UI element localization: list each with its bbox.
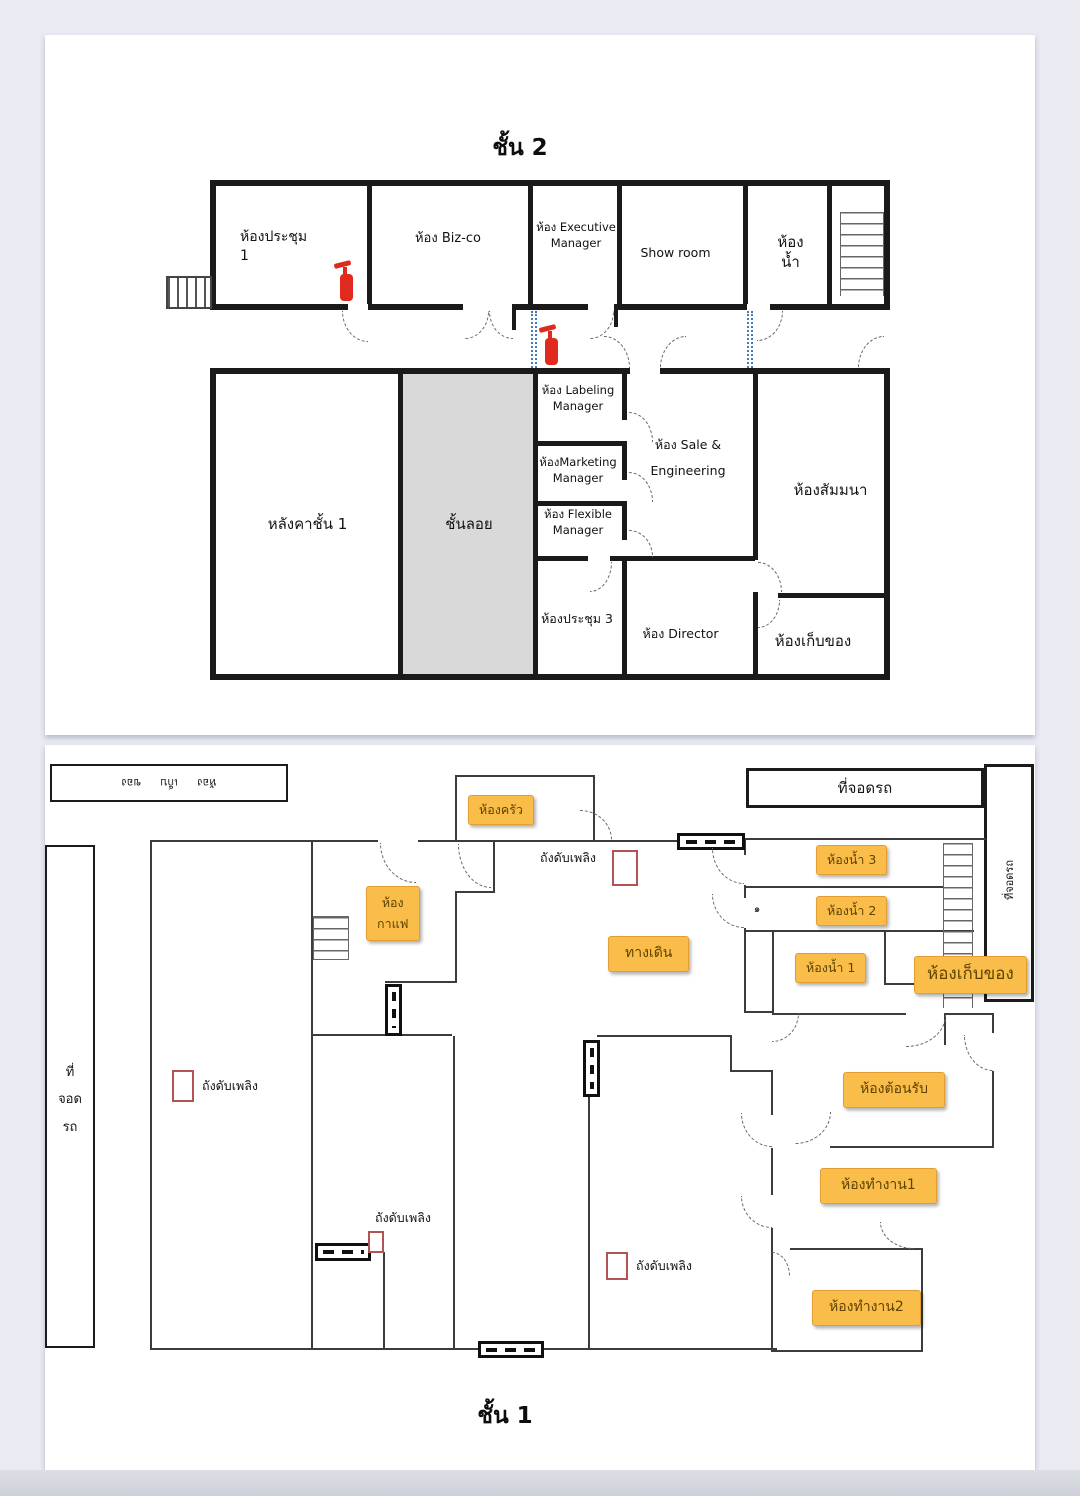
room-label-line: 1 bbox=[240, 247, 340, 266]
wall bbox=[150, 840, 378, 842]
wall bbox=[743, 186, 748, 304]
wall bbox=[744, 886, 944, 888]
wall bbox=[622, 374, 627, 420]
wall bbox=[512, 304, 588, 310]
room-label-line: Manager bbox=[533, 236, 619, 252]
wall bbox=[610, 556, 627, 561]
wall bbox=[210, 368, 216, 680]
room-label-marketing: ห้องMarketing Manager bbox=[538, 455, 618, 486]
room-label-line: ห้องประชุม bbox=[240, 228, 340, 247]
badge-toilet3: ห้องน้ำ 3 bbox=[816, 845, 887, 875]
badge-office1: ห้องทำงาน1 bbox=[820, 1168, 937, 1204]
parking-left-line: ที่ bbox=[47, 1059, 93, 1086]
parking-left-label: ที่ จอด รถ bbox=[47, 1059, 93, 1141]
room-label-line: Manager bbox=[538, 399, 618, 415]
wall bbox=[597, 1035, 732, 1037]
room-label-flexible: ห้อง Flexible Manager bbox=[538, 507, 618, 538]
room-label-line: น้ำ bbox=[768, 252, 813, 272]
wall bbox=[944, 1013, 994, 1015]
room-label-mezzanine: ชั้นลอย bbox=[433, 514, 505, 534]
sliding-door-icon bbox=[478, 1341, 544, 1358]
badge-line: กาแฟ bbox=[377, 913, 409, 934]
wall bbox=[210, 304, 348, 310]
wall bbox=[538, 556, 588, 561]
connector-dotted-icon bbox=[531, 311, 537, 368]
wall bbox=[455, 775, 595, 777]
wall bbox=[884, 932, 886, 985]
connector-dotted-icon bbox=[747, 311, 753, 368]
wall bbox=[538, 441, 627, 446]
wall bbox=[770, 304, 890, 310]
wall bbox=[730, 1070, 773, 1072]
room-label-line: ห้อง Labeling bbox=[538, 383, 618, 399]
room-label-labeling: ห้อง Labeling Manager bbox=[538, 383, 618, 414]
wall bbox=[744, 838, 986, 840]
wall bbox=[884, 368, 890, 680]
room-label-line: ห้อง Executive bbox=[533, 220, 619, 236]
wall bbox=[210, 180, 890, 186]
wall bbox=[383, 1252, 385, 1350]
wall bbox=[771, 1072, 773, 1115]
wall bbox=[418, 840, 678, 842]
wall bbox=[622, 561, 627, 674]
wall bbox=[622, 506, 627, 540]
badge-coffee: ห้อง กาแฟ bbox=[366, 886, 420, 941]
room-label-line: ห้อง Sale & bbox=[638, 432, 738, 458]
wall bbox=[660, 368, 890, 374]
door-post bbox=[614, 310, 618, 327]
fire-extinguisher-outline-icon bbox=[172, 1070, 194, 1102]
wall bbox=[367, 186, 372, 304]
wall bbox=[778, 593, 890, 598]
fire-extinguisher-icon bbox=[545, 338, 558, 365]
storage-box-rotated: ห้อง เก็บ ของ bbox=[50, 764, 288, 802]
stairs-icon bbox=[166, 276, 212, 309]
wall bbox=[455, 891, 457, 983]
fire-extinguisher-label: ถังดับเพลิง bbox=[636, 1258, 746, 1275]
wall bbox=[210, 674, 890, 680]
wall bbox=[398, 368, 403, 680]
wall bbox=[744, 930, 974, 932]
wall bbox=[790, 1248, 923, 1250]
wall bbox=[744, 1011, 774, 1013]
badge-line: ห้อง bbox=[377, 892, 409, 913]
wall bbox=[744, 928, 746, 1013]
room-label-line: Manager bbox=[538, 471, 618, 487]
fire-extinguisher-label: ถังดับเพลิง bbox=[375, 1210, 485, 1227]
badge-walkway: ทางเดิน bbox=[608, 936, 689, 972]
wall bbox=[992, 1071, 994, 1148]
fire-extinguisher-icon bbox=[340, 274, 353, 301]
wall bbox=[455, 891, 495, 893]
room-label-line: ห้องMarketing bbox=[538, 455, 618, 471]
badge-toilet2: ห้องน้ำ 2 bbox=[816, 896, 887, 926]
floor1-title: ชั้น 1 bbox=[445, 1398, 565, 1434]
room-label-meeting3: ห้องประชุม 3 bbox=[536, 611, 618, 628]
wall bbox=[753, 368, 758, 560]
wall bbox=[538, 501, 627, 506]
badge-storage-f1: ห้องเก็บของ bbox=[914, 956, 1027, 994]
parking-left-line: รถ bbox=[47, 1114, 93, 1141]
room-label-executive: ห้อง Executive Manager bbox=[533, 220, 619, 251]
wall bbox=[730, 1035, 732, 1072]
room-label-bizco: ห้อง Biz-co bbox=[393, 230, 503, 248]
wall bbox=[385, 981, 457, 983]
wall bbox=[884, 180, 890, 310]
stairs-icon bbox=[840, 212, 884, 296]
stairs-icon bbox=[313, 916, 349, 960]
room-label-line: Manager bbox=[538, 523, 618, 539]
fire-extinguisher-outline-icon bbox=[368, 1231, 384, 1253]
parking-right-label: ที่จอดรถ bbox=[999, 845, 1019, 915]
wall bbox=[992, 1015, 994, 1033]
room-label-line: ห้อง bbox=[768, 232, 813, 252]
page-footer-shade bbox=[0, 1470, 1080, 1496]
sliding-door-icon bbox=[583, 1040, 600, 1097]
floor-plan-page: ชั้น 2 bbox=[0, 0, 1080, 1496]
storage-box-label: ห้อง เก็บ ของ bbox=[52, 766, 286, 800]
wall bbox=[150, 840, 152, 1350]
wall bbox=[150, 1348, 777, 1350]
wall bbox=[622, 446, 627, 480]
wall bbox=[771, 1148, 773, 1195]
sliding-door-icon bbox=[385, 984, 402, 1036]
badge-office2: ห้องทำงาน2 bbox=[812, 1290, 921, 1326]
room-label-sale: ห้อง Sale & Engineering bbox=[638, 432, 738, 485]
room-label-line: Engineering bbox=[638, 458, 738, 484]
wall bbox=[830, 1146, 994, 1148]
room-label-seminar: ห้องสัมมนา bbox=[783, 480, 878, 500]
parking-left-strip: ที่ จอด รถ bbox=[45, 845, 95, 1348]
wall bbox=[771, 1228, 773, 1350]
wall bbox=[453, 1036, 455, 1350]
room-label-showroom: Show room bbox=[628, 245, 723, 262]
wall bbox=[455, 775, 457, 840]
room-label-director: ห้อง Director bbox=[633, 626, 728, 643]
room-label-line: ห้อง Flexible bbox=[538, 507, 618, 523]
badge-reception: ห้องต้อนรับ bbox=[843, 1072, 945, 1108]
wall bbox=[921, 1250, 923, 1352]
wall bbox=[368, 304, 463, 310]
floor2-title: ชั้น 2 bbox=[445, 130, 595, 166]
wall bbox=[614, 304, 747, 310]
parking-top-label: ที่จอดรถ bbox=[749, 771, 981, 805]
parking-left-line: จอด bbox=[47, 1086, 93, 1113]
sliding-door-icon bbox=[315, 1243, 371, 1261]
badge-kitchen: ห้องครัว bbox=[468, 795, 534, 825]
wall bbox=[772, 932, 774, 1013]
wall bbox=[827, 186, 832, 304]
fire-extinguisher-outline-icon bbox=[612, 850, 638, 886]
fire-extinguisher-outline-icon bbox=[606, 1252, 628, 1280]
wall bbox=[771, 1350, 923, 1352]
wall bbox=[588, 1097, 590, 1350]
fire-extinguisher-label: ถังดับเพลิง bbox=[202, 1078, 312, 1095]
room-label-storage-f2: ห้องเก็บของ bbox=[763, 631, 863, 651]
fire-extinguisher-label: ถังดับเพลิง bbox=[528, 850, 608, 867]
room-label-toilet-f2: ห้อง น้ำ bbox=[768, 232, 813, 273]
room-label-roof: หลังคาชั้น 1 bbox=[255, 514, 360, 534]
room-label-meeting1: ห้องประชุม 1 bbox=[240, 228, 340, 266]
door-mark: ๑ bbox=[750, 903, 764, 917]
parking-top-box: ที่จอดรถ bbox=[746, 768, 984, 808]
wall bbox=[311, 1034, 452, 1036]
badge-toilet1: ห้องน้ำ 1 bbox=[795, 953, 866, 983]
wall bbox=[493, 842, 495, 891]
